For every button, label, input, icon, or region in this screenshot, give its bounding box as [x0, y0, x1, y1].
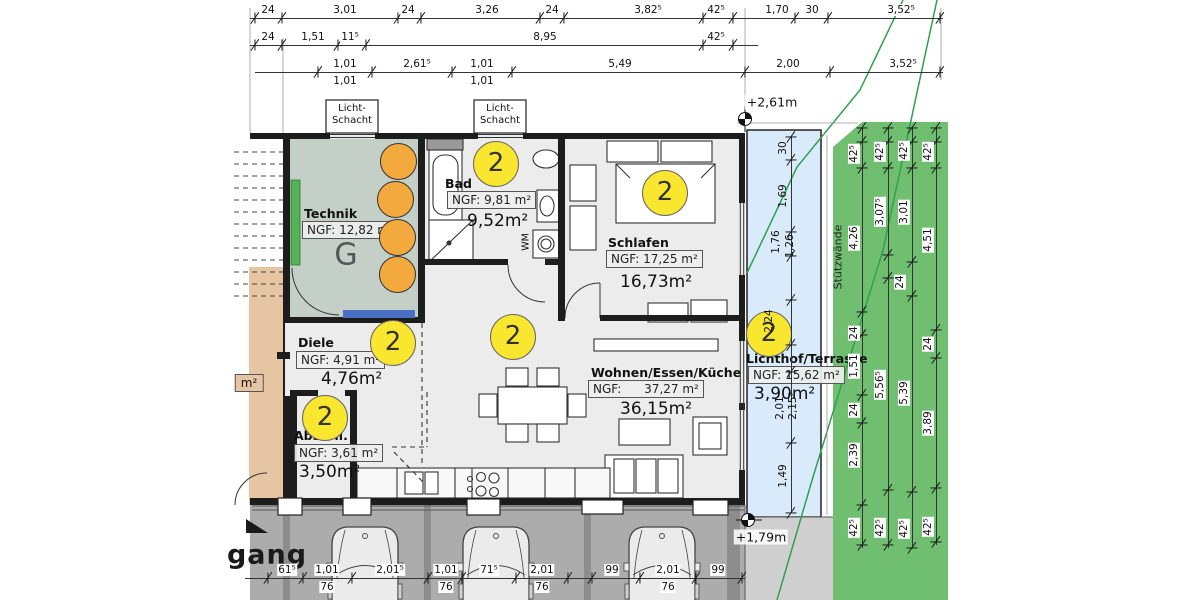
- dim-label: 24: [922, 336, 934, 351]
- dim-label: 3,26: [474, 4, 499, 16]
- dim-label: 1,76: [770, 229, 782, 254]
- annotation-level-lower: +1,79m: [734, 530, 788, 545]
- dim-label: 24: [894, 274, 906, 289]
- dim-label: 1,70: [764, 4, 789, 16]
- dim-label: 42⁵: [874, 518, 886, 538]
- dim-label: 71⁵: [479, 564, 499, 576]
- room-area-bad: 9,52m²: [467, 211, 528, 231]
- dim-label: 61⁵: [277, 564, 297, 576]
- light-shaft-label: Licht-Schacht: [326, 100, 378, 126]
- dim-label: 1,26: [784, 233, 796, 258]
- zone-number-marker: 2: [370, 320, 416, 366]
- tank-symbol: [379, 219, 416, 256]
- room-ngf-schlafen: NGF: 17,25 m²: [606, 250, 703, 268]
- dimension-line-wall-chain-4: [936, 128, 937, 545]
- room-name-diele: Diele: [298, 335, 334, 350]
- dimension-line-top-row-1: [250, 18, 943, 19]
- dim-label: 4,51: [922, 227, 934, 252]
- dim-label: 3,89: [922, 410, 934, 435]
- dim-label: 2,61⁵: [402, 58, 432, 70]
- dim-label: 1,51: [848, 353, 860, 378]
- dimension-line-top-row-3: [255, 72, 943, 73]
- dim-label: 2,39: [848, 442, 860, 467]
- dimension-line-lichthof-chain: [791, 137, 792, 513]
- dim-label: 1,01: [332, 58, 357, 70]
- room-ngf-lichthof: NGF: 15,62 m²: [748, 366, 845, 384]
- floor-plan-sheet: TechnikNGF: 12,82 m²BadNGF: 9,81 m²9,52m…: [0, 0, 1200, 600]
- tank-symbol: [379, 256, 416, 293]
- dim-label: 4,26: [848, 225, 860, 250]
- dim-label: 76: [319, 581, 334, 593]
- dim-label: 1,01: [469, 75, 494, 87]
- room-ngf-abstell: NGF: 3,61 m²: [294, 444, 383, 462]
- dim-label: 76: [534, 581, 549, 593]
- zone-number-marker: 2: [490, 314, 536, 360]
- room-name-bad: Bad: [445, 176, 472, 191]
- dim-label: 24: [260, 31, 275, 43]
- dim-label: 3,01: [898, 199, 910, 224]
- dim-label: 42⁵: [898, 141, 910, 161]
- dim-label: 30: [804, 4, 819, 16]
- dim-label: 5,39: [898, 380, 910, 405]
- room-name-schlafen: Schlafen: [608, 235, 669, 250]
- dim-label: 8,95: [532, 31, 557, 43]
- dim-label: 5,49: [607, 58, 632, 70]
- annotation-level-upper: +2,61m: [745, 95, 799, 110]
- room-area-abstell: 3,50m²: [299, 462, 360, 482]
- dim-label: 1,01: [433, 564, 458, 576]
- dim-label: 99: [604, 564, 619, 576]
- dim-label: 42⁵: [874, 142, 886, 162]
- dim-label: 2,01: [655, 564, 680, 576]
- light-shaft-label: Licht-Schacht: [474, 100, 526, 126]
- dim-label: 2,15⁵: [787, 391, 799, 421]
- labels-layer: TechnikNGF: 12,82 m²BadNGF: 9,81 m²9,52m…: [0, 0, 1200, 600]
- room-name-wohnen: Wohnen/Essen/Küche: [591, 365, 741, 380]
- tank-symbol: [380, 143, 417, 180]
- annotation-g-letter: G: [334, 238, 357, 273]
- room-name-technik: Technik: [304, 206, 357, 221]
- dim-label: 24: [848, 402, 860, 417]
- dim-label: 3,07⁵: [874, 197, 886, 227]
- annotation-stuetzwaende: Stützwände: [832, 225, 845, 290]
- dimension-line-wall-chain-3: [912, 128, 913, 548]
- zone-number-marker: 2: [642, 170, 688, 216]
- dim-label: 42⁵: [706, 31, 726, 43]
- dim-label: 1,01: [314, 564, 339, 576]
- dim-label: 3,52⁵: [886, 4, 916, 16]
- dim-label: 1,01: [332, 75, 357, 87]
- dim-label: 30: [777, 140, 789, 155]
- dim-label: 1,69: [777, 183, 789, 208]
- room-ngf-wohnen: NGF: 37,27 m²: [588, 380, 704, 398]
- dim-label: 3,82⁵: [633, 4, 663, 16]
- room-ngf-bad: NGF: 9,81 m²: [447, 191, 536, 209]
- dimension-line-wall-chain-1: [862, 128, 863, 548]
- dim-label: 3,52⁵: [888, 58, 918, 70]
- dim-label: 76: [660, 581, 675, 593]
- dim-label: 2,01⁵: [375, 564, 405, 576]
- dimension-line-bottom-row: [245, 578, 745, 579]
- dim-label: 42⁵: [922, 142, 934, 162]
- dim-label: 1,01: [469, 58, 494, 70]
- room-area-schlafen: 16,73m²: [620, 272, 692, 292]
- dim-label: 11⁵: [340, 31, 360, 43]
- dim-label: 2,01: [529, 564, 554, 576]
- dim-label: 2,01: [774, 395, 786, 420]
- zone-number-marker: 2: [473, 141, 519, 187]
- dim-label: 2,24: [763, 308, 775, 333]
- room-area-diele: 4,76m²: [321, 369, 382, 389]
- dimension-line-top-row-2: [250, 45, 758, 46]
- dim-label: 42⁵: [898, 519, 910, 539]
- dim-label: 42⁵: [706, 4, 726, 16]
- tank-symbol: [377, 181, 414, 218]
- dim-label: 24: [544, 4, 559, 16]
- dim-label: 1,51: [300, 31, 325, 43]
- dim-label: 3,01: [332, 4, 357, 16]
- dim-label: 24: [260, 4, 275, 16]
- zone-number-marker: 2: [302, 395, 348, 441]
- dim-label: 99: [710, 564, 725, 576]
- dim-label: 24: [848, 325, 860, 340]
- dim-label: 76: [438, 581, 453, 593]
- dim-label: 42⁵: [848, 518, 860, 538]
- dim-label: 42⁵: [922, 517, 934, 537]
- dim-label: 2,00: [775, 58, 800, 70]
- dim-label: 24: [400, 4, 415, 16]
- dim-label: 5,56⁵: [874, 370, 886, 400]
- dim-label: 1,49: [777, 463, 789, 488]
- dim-label: 42⁵: [848, 144, 860, 164]
- annotation-wm: WM: [521, 233, 532, 251]
- room-area-wohnen: 36,15m²: [620, 399, 692, 419]
- annotation-m2-fragment: m²: [235, 374, 264, 392]
